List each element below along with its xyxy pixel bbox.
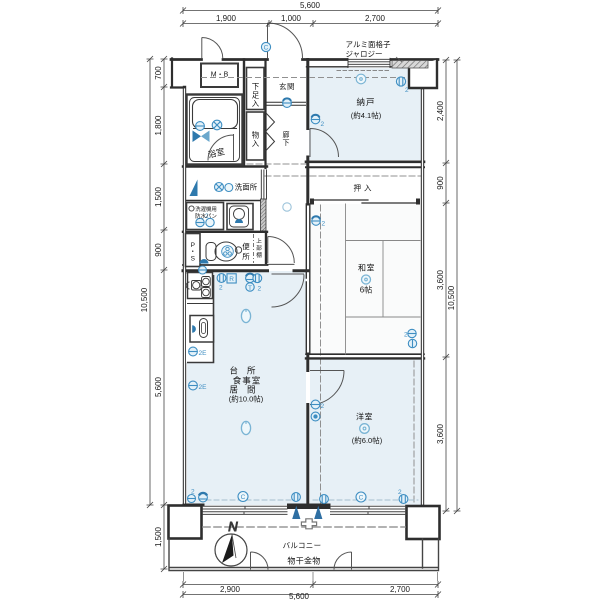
svg-text:700: 700 <box>154 66 163 80</box>
svg-text:C: C <box>241 494 246 501</box>
svg-text:便: 便 <box>242 241 250 251</box>
svg-text:物: 物 <box>252 130 260 140</box>
svg-text:6帖: 6帖 <box>360 285 372 295</box>
svg-text:物干金物: 物干金物 <box>287 556 320 566</box>
svg-text:部: 部 <box>256 244 262 252</box>
svg-text:2: 2 <box>321 121 325 128</box>
svg-text:M・B: M・B <box>211 72 229 79</box>
svg-text:洗面所: 洗面所 <box>235 182 258 192</box>
svg-text:洗濯機用: 洗濯機用 <box>195 205 217 213</box>
svg-text:5,600: 5,600 <box>154 376 163 397</box>
svg-text:C: C <box>359 495 364 502</box>
svg-text:2: 2 <box>322 221 326 228</box>
svg-text:2: 2 <box>405 87 409 94</box>
svg-text:所: 所 <box>242 251 250 261</box>
svg-text:2E: 2E <box>199 384 208 391</box>
svg-text:1,900: 1,900 <box>216 14 237 23</box>
svg-text:押入: 押入 <box>354 183 375 193</box>
svg-text:2: 2 <box>321 403 325 410</box>
svg-text:10,500: 10,500 <box>140 287 149 312</box>
svg-text:3,600: 3,600 <box>436 269 445 290</box>
svg-text:バルコニー: バルコニー <box>283 541 322 550</box>
svg-text:T: T <box>248 285 252 292</box>
svg-text:2,700: 2,700 <box>390 585 411 594</box>
svg-text:2,900: 2,900 <box>220 585 241 594</box>
svg-text:3,600: 3,600 <box>436 423 445 444</box>
svg-text:1,000: 1,000 <box>281 14 302 23</box>
svg-text:R: R <box>229 276 234 283</box>
svg-text:(約6.0帖): (約6.0帖) <box>352 435 383 445</box>
svg-text:棚: 棚 <box>256 251 262 259</box>
svg-text:2E: 2E <box>199 350 208 357</box>
svg-text:2: 2 <box>258 286 262 293</box>
svg-text:玄関: 玄関 <box>279 81 295 91</box>
svg-text:C: C <box>264 45 269 52</box>
svg-text:入: 入 <box>252 139 260 148</box>
svg-text:洋室: 洋室 <box>356 412 373 422</box>
svg-text:台所: 台所 <box>229 366 264 376</box>
svg-text:5,600: 5,600 <box>300 1 321 10</box>
svg-text:入: 入 <box>252 99 260 108</box>
svg-text:5,600: 5,600 <box>289 592 310 600</box>
svg-text:ジャロジー: ジャロジー <box>345 50 382 59</box>
svg-text:(約10.0帖): (約10.0帖) <box>229 394 264 404</box>
svg-text:900: 900 <box>436 176 445 190</box>
svg-text:1,500: 1,500 <box>154 186 163 207</box>
svg-text:廊: 廊 <box>283 130 290 139</box>
svg-text:納戸: 納戸 <box>356 97 375 107</box>
svg-text:2,400: 2,400 <box>436 100 445 121</box>
svg-text:・: ・ <box>190 249 197 256</box>
svg-text:N: N <box>228 519 238 534</box>
svg-text:(約4.1帖): (約4.1帖) <box>351 110 382 120</box>
svg-text:和室: 和室 <box>358 263 375 273</box>
svg-text:防水パン: 防水パン <box>195 212 217 220</box>
svg-text:下: 下 <box>283 139 290 147</box>
svg-text:居間: 居間 <box>229 385 264 395</box>
svg-text:2: 2 <box>219 285 223 292</box>
svg-text:10,500: 10,500 <box>447 285 456 310</box>
svg-text:1,800: 1,800 <box>154 115 163 136</box>
svg-text:1,500: 1,500 <box>154 526 163 547</box>
svg-text:上: 上 <box>256 237 262 245</box>
svg-text:アルミ面格子: アルミ面格子 <box>346 39 391 49</box>
svg-text:900: 900 <box>154 243 163 257</box>
svg-text:2,700: 2,700 <box>365 14 386 23</box>
svg-text:S: S <box>191 256 196 263</box>
